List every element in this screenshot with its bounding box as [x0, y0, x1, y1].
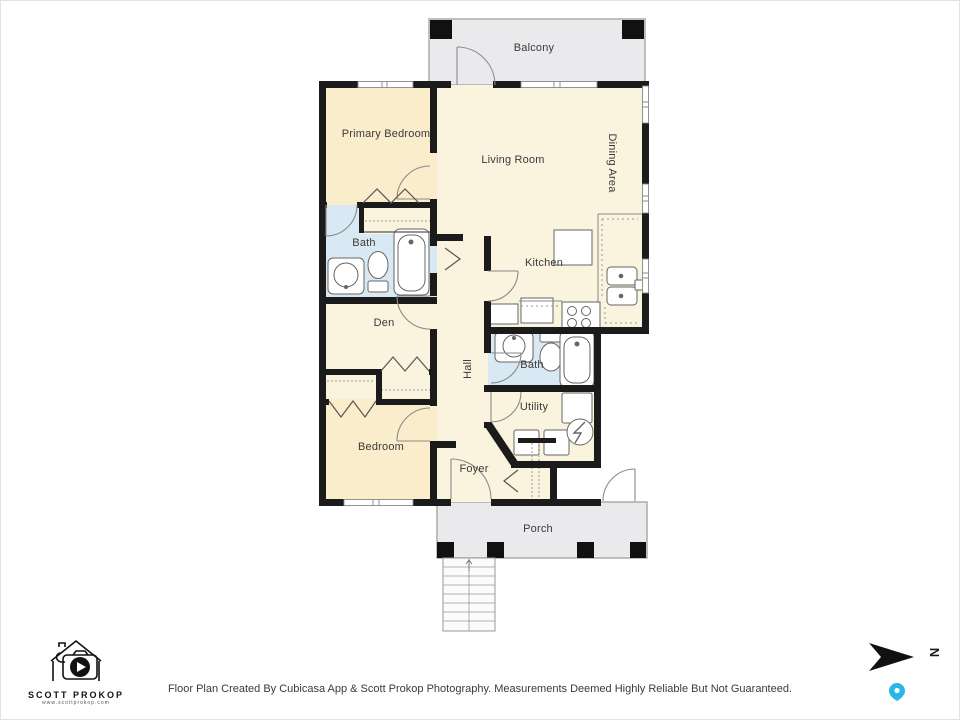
appliance-icon: [562, 393, 592, 423]
window: [643, 259, 649, 293]
room-label-porch: Porch: [523, 523, 553, 535]
floorplan-page: Balcony Primary Bedroom Living Room Dini…: [0, 0, 960, 720]
room-label-bath-2: Bath: [520, 359, 543, 371]
window: [643, 86, 649, 123]
room-label-balcony: Balcony: [514, 42, 555, 54]
floorplan-drawing: [1, 1, 960, 720]
door-swing: [603, 469, 635, 501]
bathtub-icon: [394, 229, 429, 295]
bathtub-icon: [560, 331, 594, 387]
logo-url: www.scottprokop.com: [21, 700, 131, 706]
room-label-hall: Hall: [462, 359, 474, 379]
water-heater-icon: [567, 419, 593, 445]
porch-post: [487, 542, 504, 558]
window: [358, 82, 413, 88]
stairs-icon: [443, 558, 495, 631]
porch-post: [437, 542, 454, 558]
dishwasher-icon: [521, 298, 553, 323]
disclaimer-text: Floor Plan Created By Cubicasa App & Sco…: [1, 683, 959, 695]
sink-icon: [495, 332, 533, 362]
room-label-bedroom: Bedroom: [358, 441, 404, 453]
room-label-foyer: Foyer: [459, 463, 488, 475]
compass-letter: N: [927, 648, 942, 657]
porch-post: [577, 542, 594, 558]
logo-house-camera-icon: [21, 635, 131, 687]
balcony-post: [430, 20, 452, 39]
porch-post: [630, 542, 646, 558]
location-pin-icon: [889, 683, 905, 701]
sink-icon: [328, 258, 364, 294]
room-label-den: Den: [374, 317, 395, 329]
room-label-utility: Utility: [520, 401, 548, 413]
window: [344, 500, 413, 506]
window: [643, 184, 649, 213]
cabinet-icon: [490, 304, 518, 324]
room-label-kitchen: Kitchen: [525, 257, 563, 269]
balcony-post: [622, 20, 644, 39]
room-label-dining-area: Dining Area: [606, 133, 618, 192]
compass: N: [851, 635, 941, 701]
room-label-bath-1: Bath: [352, 237, 375, 249]
room-label-living-room: Living Room: [481, 154, 544, 166]
room-label-primary-bedroom: Primary Bedroom: [342, 128, 431, 140]
north-arrow-icon: [851, 635, 941, 701]
photographer-logo: SCOTT PROKOP www.scottprokop.com: [21, 635, 131, 706]
window: [521, 82, 597, 88]
toilet-icon: [368, 252, 388, 293]
